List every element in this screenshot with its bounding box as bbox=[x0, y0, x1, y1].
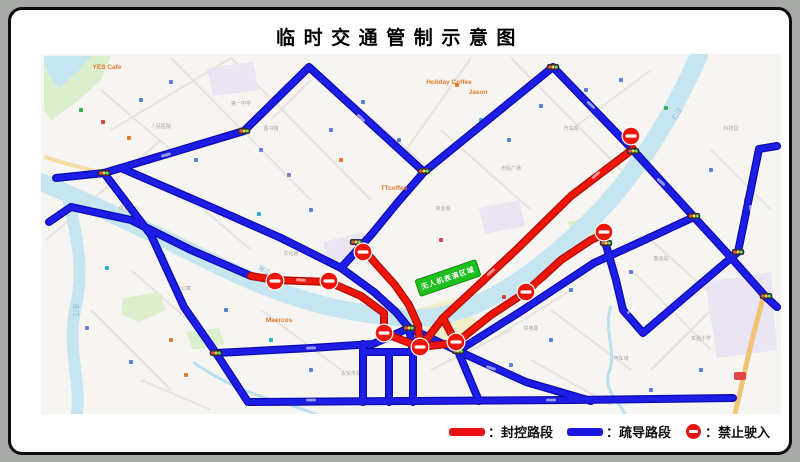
poi-dot bbox=[257, 212, 261, 216]
poi-dot bbox=[439, 238, 443, 242]
poi-dot bbox=[709, 168, 713, 172]
poi-dot bbox=[259, 148, 263, 152]
map-label: 客运站 bbox=[653, 255, 668, 262]
screenshot-stage: 临时交通管制示意图 市民广场第一中学人民医院体育中心汽车站商业城客运站实验小学文… bbox=[0, 0, 800, 462]
poi-dot bbox=[224, 308, 228, 312]
poi-dot bbox=[129, 360, 133, 364]
map-label: 人民医院 bbox=[151, 123, 171, 130]
poi-dot bbox=[105, 266, 109, 270]
traffic-light-icon bbox=[238, 128, 250, 134]
highway-shield bbox=[734, 372, 746, 380]
poi-dot bbox=[169, 338, 173, 342]
poi-dot bbox=[169, 80, 173, 84]
poi-dot bbox=[584, 88, 588, 92]
map-label: 汽车城 bbox=[613, 355, 628, 362]
road-name-mark bbox=[546, 399, 556, 402]
traffic-light-icon bbox=[403, 325, 415, 331]
poi-dot bbox=[649, 388, 653, 392]
blue-bar-icon bbox=[567, 428, 603, 436]
district-zone bbox=[705, 272, 777, 358]
legend-noentry-label: ：禁止驶入 bbox=[705, 422, 770, 441]
map-label: 汽车站 bbox=[563, 125, 578, 132]
map-label: 市民广场 bbox=[501, 165, 521, 172]
poi-dot bbox=[287, 173, 291, 177]
traffic-light-icon bbox=[688, 213, 700, 219]
map-label: 农贸市场 bbox=[341, 370, 361, 377]
poi-dot bbox=[79, 108, 83, 112]
poi-dot bbox=[549, 338, 553, 342]
poi-dot bbox=[502, 295, 506, 299]
map-label: 商业城 bbox=[435, 205, 450, 212]
no-entry-icon bbox=[411, 338, 430, 357]
river-label: 连江 bbox=[72, 304, 81, 318]
traffic-light-icon bbox=[760, 293, 772, 299]
map-label: 第一中学 bbox=[231, 100, 251, 107]
traffic-light-icon bbox=[547, 64, 559, 70]
poi-label: Holiday Coffee bbox=[426, 79, 472, 86]
road-name-mark bbox=[306, 399, 316, 402]
map-label: 图书馆 bbox=[263, 125, 278, 132]
diagram-card: 临时交通管制示意图 市民广场第一中学人民医院体育中心汽车站商业城客运站实验小学文… bbox=[8, 7, 792, 455]
no-entry-icon bbox=[354, 243, 373, 262]
poi-label: YES Cafe bbox=[93, 64, 122, 71]
poi-dot bbox=[507, 138, 511, 142]
poi-dot bbox=[619, 78, 623, 82]
road-name-mark bbox=[306, 346, 316, 349]
traffic-light-icon bbox=[210, 350, 222, 356]
poi-dot bbox=[309, 368, 313, 372]
poi-label: Maercos bbox=[266, 317, 293, 324]
map-label: 文化宫 bbox=[283, 250, 298, 257]
poi-dot bbox=[194, 158, 198, 162]
district-zone bbox=[207, 62, 259, 96]
no-entry-icon bbox=[447, 333, 466, 352]
poi-dot bbox=[569, 288, 573, 292]
poi-label: TTcoffee bbox=[381, 185, 408, 192]
traffic-light-icon bbox=[627, 148, 639, 154]
legend: ：封控路段 ：疏导路段 ：禁止驶入 bbox=[449, 422, 770, 441]
map-label: 实验小学 bbox=[691, 335, 711, 342]
poi-dot bbox=[184, 373, 188, 377]
poi-dot bbox=[539, 104, 543, 108]
poi-dot bbox=[339, 158, 343, 162]
map-label: 科技园 bbox=[723, 125, 738, 132]
no-entry-icon bbox=[266, 272, 285, 291]
diagram-title: 临时交通管制示意图 bbox=[11, 23, 789, 50]
no-entry-icon bbox=[685, 423, 702, 440]
poi-dot bbox=[664, 106, 668, 110]
poi-dot bbox=[85, 326, 89, 330]
no-entry-icon bbox=[595, 223, 614, 242]
no-entry-icon bbox=[320, 272, 339, 291]
legend-diversion-label: ：疏导路段 bbox=[606, 422, 671, 441]
poi-dot bbox=[329, 128, 333, 132]
legend-item-closed-road: ：封控路段 bbox=[449, 422, 553, 441]
traffic-light-icon bbox=[98, 170, 110, 176]
poi-dot bbox=[361, 100, 365, 104]
poi-dot bbox=[269, 338, 273, 342]
no-entry-icon bbox=[517, 283, 536, 302]
red-bar-icon bbox=[449, 428, 485, 436]
poi-dot bbox=[127, 136, 131, 140]
traffic-map: 市民广场第一中学人民医院体育中心汽车站商业城客运站实验小学文化宫供电局农贸市场汽… bbox=[41, 54, 781, 414]
no-entry-icon bbox=[375, 324, 394, 343]
poi-dot bbox=[699, 368, 703, 372]
poi-dot bbox=[139, 98, 143, 102]
legend-item-diversion-road: ：疏导路段 bbox=[567, 422, 671, 441]
poi-dot bbox=[509, 363, 513, 367]
poi-dot bbox=[101, 120, 105, 124]
legend-closed-label: ：封控路段 bbox=[488, 422, 553, 441]
poi-label: Jason bbox=[469, 89, 488, 96]
no-entry-icon bbox=[622, 127, 641, 146]
map-canvas: 市民广场第一中学人民医院体育中心汽车站商业城客运站实验小学文化宫供电局农贸市场汽… bbox=[41, 54, 781, 414]
traffic-light-icon bbox=[732, 249, 744, 255]
traffic-light-icon bbox=[418, 168, 430, 174]
poi-dot bbox=[629, 270, 633, 274]
poi-dot bbox=[397, 138, 401, 142]
legend-item-no-entry: ：禁止驶入 bbox=[685, 422, 770, 441]
poi-dot bbox=[309, 208, 313, 212]
map-label: 供电局 bbox=[523, 325, 538, 332]
